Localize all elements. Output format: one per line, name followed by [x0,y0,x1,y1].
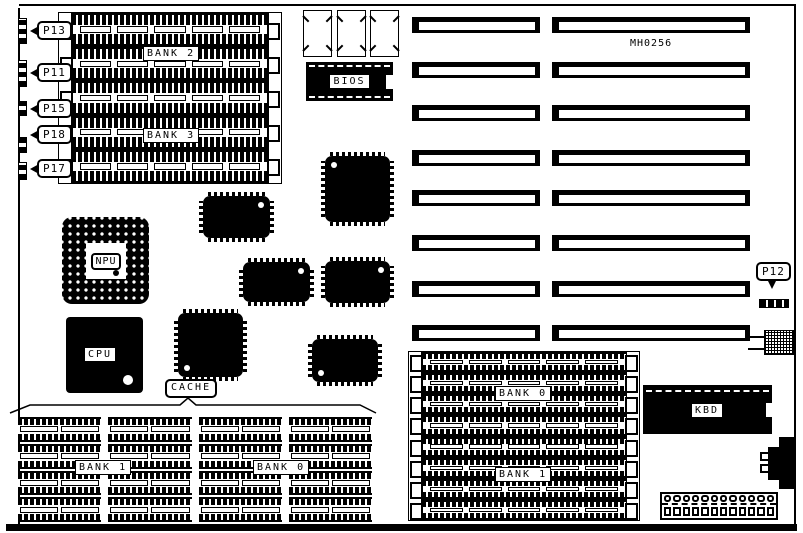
qfp-chip-1 [203,196,270,238]
qfp-chip-3 [325,261,390,303]
power-pin [729,495,736,502]
power-pin [701,495,708,502]
power-connector-sockets [662,505,776,518]
qfp-chip-2 [243,262,310,302]
cache-dip-chip [199,417,282,442]
power-pin [711,495,718,502]
simm-socket [421,500,627,520]
expansion-slot-long [552,17,750,33]
power-socket [739,507,746,516]
cache-dip-chip [289,497,372,522]
socket-outline-2 [337,10,366,57]
connector-p11 [18,60,27,87]
expansion-slot-long [552,190,750,206]
expansion-slot-long [552,105,750,121]
power-connector-pins [662,494,776,505]
power-socket [683,507,690,516]
power-socket [748,507,755,516]
power-pin [739,495,746,502]
cache-dip-chip [108,497,191,522]
socket-outline-1 [303,10,332,57]
cpu-pin1-dot [123,375,133,385]
component-lead [748,348,764,350]
crystal-component [764,330,794,355]
bios-chip: BIOS [306,62,393,101]
cache-bank0-label: BANK 0 [253,460,309,475]
connector-p13 [18,18,27,44]
kbd-label: KBD [691,403,723,418]
simm-socket [421,352,627,373]
bank3-label: BANK 3 [143,128,199,143]
power-pin [757,495,764,502]
bank2-label: BANK 2 [143,46,199,61]
p11-callout: P11 [37,63,72,82]
simm-socket [71,13,269,47]
expansion-slot-long [552,325,750,341]
bios-notch [386,75,393,89]
motherboard-diagram: BANK 2 BANK 3 P13 P11 P15 P18 P17 BIOS M… [0,0,803,533]
expansion-slot-long [552,150,750,166]
p13-callout: P13 [37,21,72,40]
kbd-notch [766,403,772,417]
expansion-slot-short [412,150,540,166]
expansion-slot-short [412,235,540,251]
power-socket [692,507,699,516]
bios-label: BIOS [329,74,369,89]
expansion-slot-short [412,17,540,33]
qfp-chip-5 [178,313,243,377]
connector-p12 [759,299,789,308]
expansion-slot-short [412,190,540,206]
power-pin [683,495,690,502]
cache-dip-chip [108,417,191,442]
connector-p15 [18,101,27,116]
cache-dip-chip [18,417,101,442]
p18-callout: P18 [37,125,72,144]
power-socket [711,507,718,516]
keyboard-din-connector [779,437,796,489]
expansion-slot-short [412,62,540,78]
dram-bank1-label: BANK 1 [495,467,551,482]
simm-socket [71,81,269,115]
power-socket [720,507,727,516]
p12-callout: P12 [756,262,791,281]
npu-center: NPU [86,243,126,279]
cache-dip-chip [18,497,101,522]
cache-dip-array [18,417,372,522]
power-pin [767,495,774,502]
dram-bank0-label: BANK 0 [495,386,551,401]
expansion-slot-short [412,281,540,297]
connector-p18 [18,137,27,153]
npu-pin1-dot [113,270,119,276]
power-socket [664,507,671,516]
simm-bank-block-bottom-right [408,351,640,521]
expansion-slot-short [412,105,540,121]
power-socket [757,507,764,516]
power-socket [673,507,680,516]
power-connector [660,492,778,520]
power-pin [673,495,680,502]
board-edge-bottom [6,524,797,531]
power-pin [664,495,671,502]
power-pin [692,495,699,502]
p17-callout: P17 [37,159,72,178]
board-edge-top [19,4,796,6]
simm-socket [421,415,627,436]
expansion-slot-long [552,235,750,251]
cpu-chip: CPU [66,317,143,393]
keyboard-controller-chip: KBD [643,385,772,434]
power-pin [720,495,727,502]
simm-socket [71,150,269,183]
qfp-chip-6 [312,339,378,382]
npu-label: NPU [91,253,120,270]
cache-bank1-label: BANK 1 [75,460,131,475]
din-tab-2 [760,464,770,473]
expansion-slot-short [412,325,540,341]
cache-label: CACHE [165,379,217,398]
component-lead [748,336,764,338]
connector-p17 [18,162,27,180]
cache-dip-chip [199,497,282,522]
expansion-slot-long [552,281,750,297]
din-tab-1 [760,452,770,461]
npu-socket: NPU [62,217,149,304]
part-number: MH0256 [630,38,672,49]
simm-socket [421,437,627,458]
qfp-chip-4 [325,156,390,222]
power-socket [701,507,708,516]
p15-callout: P15 [37,99,72,118]
power-socket [729,507,736,516]
expansion-slot-long [552,62,750,78]
power-pin [748,495,755,502]
cache-dip-chip [289,417,372,442]
power-socket [767,507,774,516]
cpu-label: CPU [84,347,116,362]
simm-bank-block-top-left [58,12,282,184]
socket-outline-3 [370,10,399,57]
